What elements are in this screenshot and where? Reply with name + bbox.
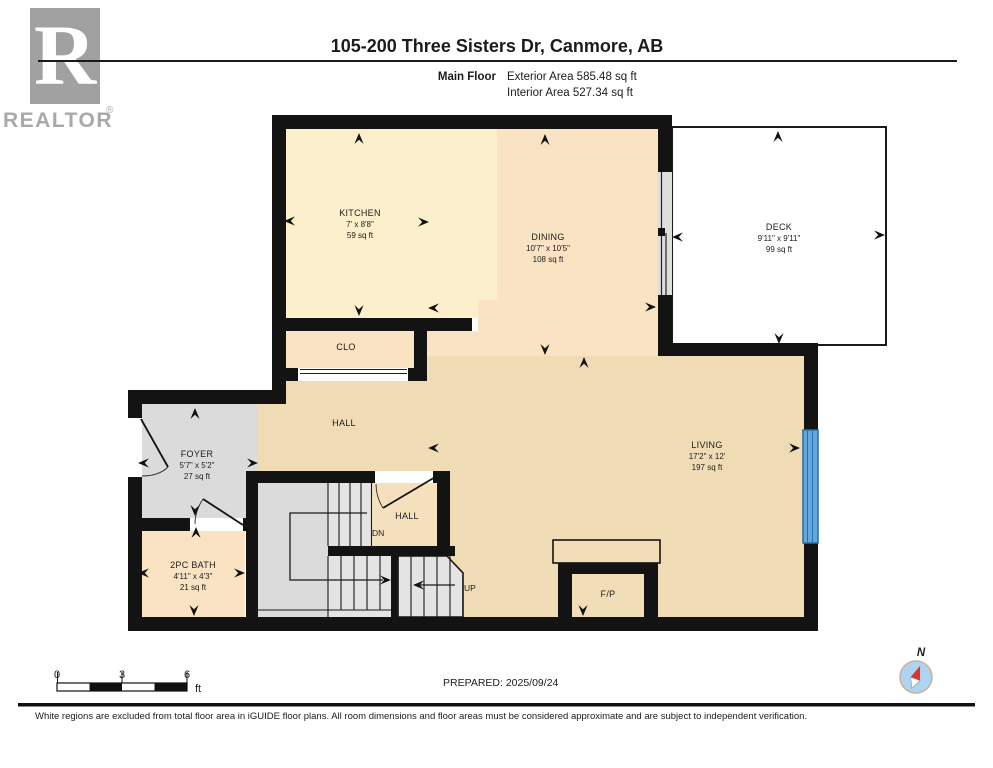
scale-unit: ft [195,683,201,695]
kitchen-floor [286,129,497,318]
floor-label: Main Floor [438,71,497,83]
floor-plan-canvas: R REALTOR ® 105-200 Three Sisters Dr, Ca… [0,0,993,768]
kitchen-area: 59 sq ft [347,231,374,240]
hall-label: HALL [332,418,356,428]
realtor-logo-text: REALTOR [3,109,113,132]
dining-area: 108 sq ft [533,255,564,264]
stair-lower-treads [328,556,391,617]
small-hall-door-opening [375,471,433,483]
footer-divider [18,703,975,707]
closet-label: CLO [336,342,355,352]
compass-icon [900,661,932,693]
kitchen-label: KITCHEN [339,208,381,218]
exterior-area-label: Exterior Area 585.48 sq ft [507,71,638,83]
interior-area-label: Interior Area 527.34 sq ft [507,87,634,99]
dining-label: DINING [531,232,564,242]
realtor-logo-r: R [34,7,97,103]
deck-label: DECK [766,222,792,232]
page-title: 105-200 Three Sisters Dr, Canmore, AB [331,36,663,56]
fireplace-hearth [553,540,660,563]
registered-mark: ® [106,105,114,116]
dining-dims: 10'7" x 10'5" [526,244,570,253]
staircase [258,471,463,617]
foyer-dims: 5'7" x 5'2" [180,461,215,470]
floorplan-page: R REALTOR ® 105-200 Three Sisters Dr, Ca… [0,0,993,768]
slider-handle [658,228,665,236]
deck-area: 99 sq ft [766,245,793,254]
bath-dims: 4'11" x 4'3" [174,572,213,581]
bath-area: 21 sq ft [180,583,207,592]
disclaimer-text: White regions are excluded from total fl… [35,711,807,722]
bath-label: 2PC BATH [170,560,216,570]
foyer-label: FOYER [181,449,214,459]
stairs-dn-label: DN [372,528,384,538]
deck-dims: 9'11" x 9'11" [758,234,801,243]
hall2-label: HALL [395,511,419,521]
fireplace [553,540,660,617]
living-window [803,430,818,543]
stair-up-treads [398,556,463,617]
living-dims: 17'2" x 12' [689,452,726,461]
foyer-area: 27 sq ft [184,472,211,481]
living-area: 197 sq ft [692,463,723,472]
kitchen-dims: 7' x 8'8" [346,220,374,229]
scale-bar: 0 3 6 ft [54,669,201,695]
prepared-date: PREPARED: 2025/09/24 [443,677,559,689]
fireplace-label: F/P [601,589,616,599]
compass-north-label: N [917,647,926,659]
living-label: LIVING [691,440,722,450]
stairs-up-label: UP [464,583,476,593]
stair-landing [258,483,328,617]
header: R REALTOR ® 105-200 Three Sisters Dr, Ca… [3,7,957,132]
